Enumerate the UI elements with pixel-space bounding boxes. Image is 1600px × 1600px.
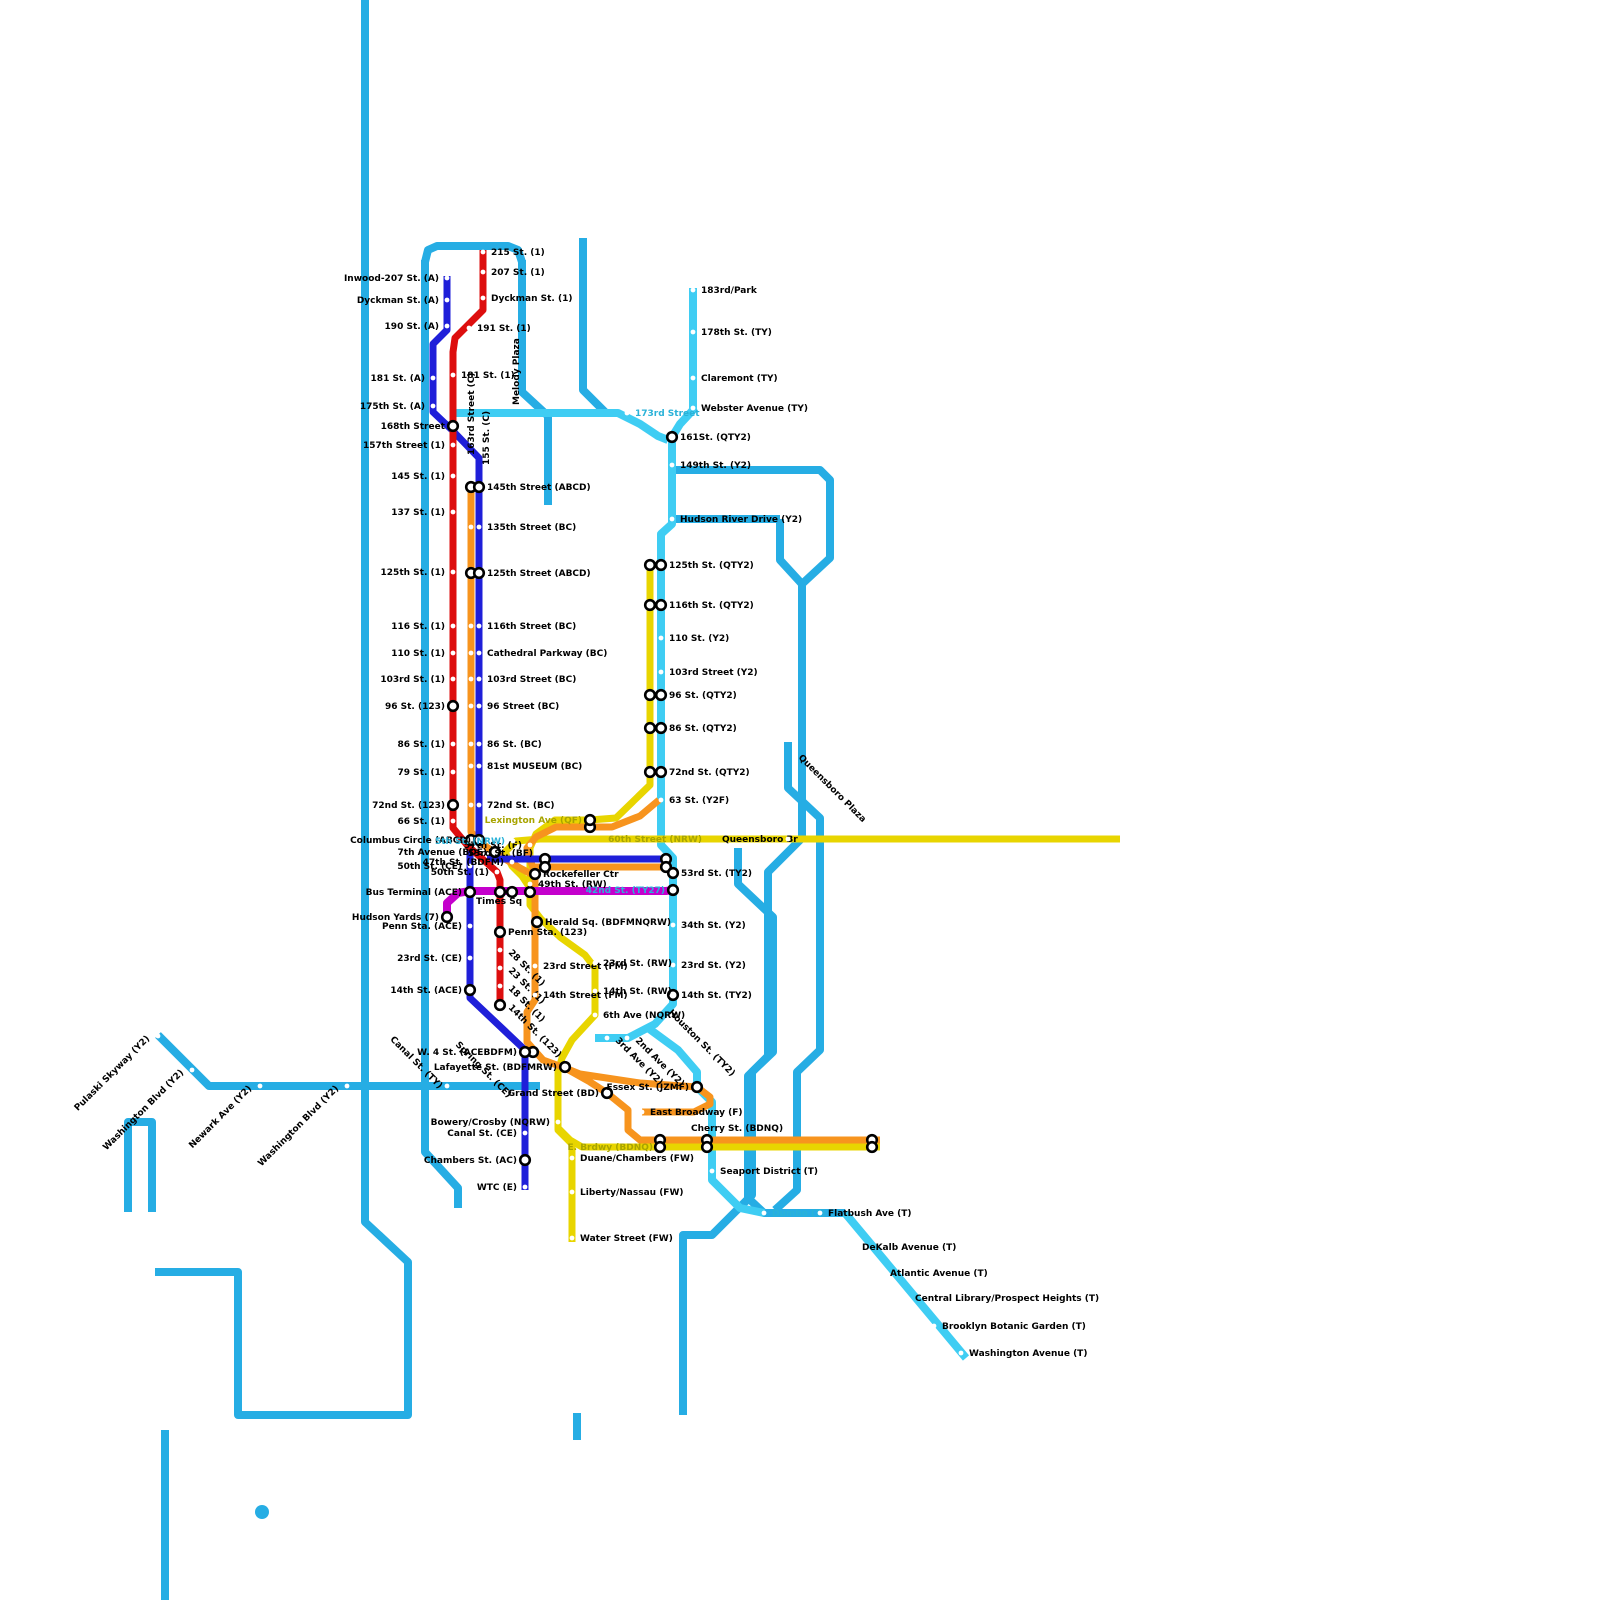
station-label: WTC (E) [477,1183,517,1193]
station-marker [451,770,456,775]
station-label: 183rd/Park [701,286,758,296]
station-marker [528,882,533,887]
transfer-circle [645,600,655,610]
station-marker [467,326,472,331]
station-marker [905,1296,910,1301]
station-label: 23rd St. (RW) [603,959,672,969]
station-marker [477,624,482,629]
station-label: Dumbo (T) [772,1209,825,1219]
station-marker [495,870,500,875]
station-marker [691,288,696,293]
station-label: Grand Street (BD) [508,1089,599,1099]
station-label: 207 St. (1) [491,268,545,278]
station-marker [852,1245,857,1250]
station-marker [477,651,482,656]
station-marker [445,276,450,281]
station-marker [498,948,503,953]
transfer-circle [645,723,655,733]
station-label: 110 St. (1) [391,649,445,659]
station-label: Brooklyn Botanic Garden (T) [942,1322,1086,1332]
station-marker [511,839,516,844]
route-line-east-river-2 [780,519,802,584]
route-line-shore-west [155,0,408,1415]
station-label: 96 St. (123) [385,702,445,712]
station-label: Canal St. (CE) [447,1129,517,1139]
station-label: Duane/Chambers (FW) [580,1154,694,1164]
station-marker [451,570,456,575]
station-marker [495,927,505,937]
station-dot [469,803,474,808]
station-dot [469,624,474,629]
station-marker [431,376,436,381]
transfer-circle [702,1142,712,1152]
station-label: Times Sq [476,897,522,907]
station-marker [445,1084,450,1089]
station-label: 110 St. (Y2) [669,634,729,644]
station-label: 168th Street [381,422,446,432]
station-marker [670,517,675,522]
station-label: Hudson River Drive (Y2) [680,515,802,525]
station-label: Flatbush Ave (T) [828,1209,911,1219]
station-marker [593,1013,598,1018]
station-marker [691,376,696,381]
station-marker [445,298,450,303]
station-marker [520,1155,530,1165]
station-label: 149th St. (Y2) [680,461,751,471]
station-marker [880,1271,885,1276]
station-label: Dyckman St. (A) [357,296,439,306]
station-label: 60th Street (NRW) [608,835,702,845]
station-marker [528,843,533,848]
station-marker [451,443,456,448]
station-label: Bus Terminal (ACE) [366,888,462,898]
subway-map-canvas: Inwood-207 St. (A)Dyckman St. (A)190 St.… [0,0,1600,1600]
station-marker [477,764,482,769]
station-label: Webster Avenue (TY) [701,404,808,414]
station-marker [448,800,458,810]
station-marker [520,1047,530,1057]
station-marker [762,1211,767,1216]
station-marker [670,463,675,468]
station-marker [190,1068,195,1073]
station-label: 190 St. (A) [385,322,439,332]
station-marker [932,1324,937,1329]
station-dot [469,677,474,682]
station-marker [477,704,482,709]
station-label: 125th St. (QTY2) [669,561,754,571]
transfer-circle [525,887,535,897]
transfer-circle [507,887,517,897]
station-marker [786,837,791,842]
station-marker [468,924,473,929]
station-dot [469,742,474,747]
station-label: Queensboro Plaza [796,753,868,825]
station-marker [585,815,595,825]
station-dot [469,651,474,656]
station-marker [533,964,538,969]
station-label: 14th St. (RW) [603,987,672,997]
station-label: 63 St. (Y2F) [669,796,729,806]
station-label: 14th St. (TY2) [681,991,752,1001]
station-label: 6th Ave (NQRW) [603,1011,685,1021]
station-label: 96 Street (BC) [487,702,559,712]
island-blob [255,1505,269,1519]
station-label: 72nd St. (BC) [487,801,555,811]
station-label: 86 St. (QTY2) [669,724,737,734]
transfer-circle [655,1142,665,1152]
station-label: 81st MUSEUM (BC) [487,762,582,772]
station-marker [671,923,676,928]
station-label: Hudson Yards (7) [352,913,439,923]
station-dot [469,704,474,709]
station-label: Herald Sq. (BDFMNQRW) [545,918,671,928]
station-marker [593,989,598,994]
station-marker [465,985,475,995]
station-label: 72nd St. (123) [372,801,445,811]
station-label: 96 St. (QTY2) [669,691,737,701]
station-label: Lafayette St. (BDFMRW) [434,1063,557,1073]
station-marker [477,742,482,747]
station-label: Washington Avenue (T) [969,1349,1087,1359]
station-marker [523,1131,528,1136]
station-marker [495,1000,505,1010]
station-label: Water Street (FW) [580,1234,673,1244]
station-label: Newark Ave (Y2) [187,1084,254,1151]
station-label: 42nd St. (TY27) [586,886,665,896]
station-label: Rockefeller Ctr [543,870,619,880]
station-marker [691,330,696,335]
station-marker [481,270,486,275]
station-label: 116 St. (1) [391,622,445,632]
station-label: Inwood-207 St. (A) [344,274,439,284]
station-label: 215 St. (1) [491,248,545,258]
station-label: 181 St. (1) [461,371,515,381]
route-line-jersey-line [158,1035,540,1086]
station-marker [659,670,664,675]
station-label: 116th St. (QTY2) [669,601,754,611]
route-line-bronx-cross [672,470,830,508]
station-marker [451,742,456,747]
station-label: 155 St. (C) [482,411,492,465]
station-label: Cherry St. (BDNQ) [691,1124,783,1134]
route-line-t-trunk [595,437,673,1038]
station-label: Liberty/Nassau (FW) [580,1188,684,1198]
station-label: Dyckman St. (1) [491,294,572,304]
station-label: E. Brdwy (BDNQ) [568,1143,654,1153]
station-label: 14th St. (ACE) [390,986,462,996]
station-label: Atlantic Avenue (T) [890,1269,988,1279]
station-marker [510,860,515,865]
station-marker [481,296,486,301]
station-label: 157th Street (1) [363,441,445,451]
station-label: 125th St. (1) [381,568,445,578]
station-marker [451,474,456,479]
station-marker [445,324,450,329]
station-label: 163rd Street (C) [467,373,477,456]
station-marker [659,636,664,641]
station-label: 161St. (QTY2) [680,433,751,443]
station-marker [656,767,666,777]
station-marker [345,1084,350,1089]
station-label: 72nd St. (QTY2) [669,768,750,778]
station-label: 173rd Street [635,409,700,419]
station-label: Penn Sta. (ACE) [382,922,462,932]
station-marker [474,482,484,492]
station-marker [448,421,458,431]
station-marker [532,917,542,927]
station-marker [442,912,452,922]
station-marker [656,560,666,570]
station-label: 145 St. (1) [391,472,445,482]
station-label: 191 St. (1) [477,324,531,334]
station-marker [656,600,666,610]
station-marker [451,677,456,682]
station-marker [605,1036,610,1041]
station-label: 103rd St. (1) [380,675,445,685]
station-dot [469,525,474,530]
station-label: DeKalb Avenue (T) [862,1243,956,1253]
station-marker [258,1084,263,1089]
station-marker [625,1036,630,1041]
station-marker [692,1082,702,1092]
station-marker [474,568,484,578]
station-label: 103rd Street (Y2) [669,668,758,678]
station-label: 79 St. (1) [398,768,445,778]
station-label: Bowery/Crosby (NQRW) [431,1118,550,1128]
station-label: Pulaski Skyway (Y2) [73,1034,152,1113]
station-label: 53rd St. (BF) [468,849,533,859]
station-label: 5th St. (NRW) [435,837,505,847]
station-marker [448,701,458,711]
station-label: Essex St. (JZMF) [607,1083,689,1093]
station-label: Washington Blvd (Y2) [101,1068,186,1153]
station-label: 103rd Street (BC) [487,675,576,685]
station-marker [668,868,678,878]
station-label: 34th St. (Y2) [681,921,746,931]
station-marker [477,525,482,530]
station-label: Penn Sta. (123) [508,928,587,938]
station-marker [498,966,503,971]
transfer-circle [495,887,505,897]
station-marker [431,404,436,409]
station-marker [818,1211,823,1216]
station-label: 178th St. (TY) [701,328,772,338]
station-marker [570,1236,575,1241]
station-marker [959,1351,964,1356]
station-marker [533,993,538,998]
station-marker [468,956,473,961]
transfer-circle [645,560,655,570]
station-marker [477,803,482,808]
station-marker [556,1120,561,1125]
station-label: 175th St. (A) [360,402,425,412]
station-marker [593,961,598,966]
station-label: East Broadway (F) [650,1108,743,1118]
transfer-circle [867,1142,877,1152]
station-marker [465,887,475,897]
station-label: 23rd St. (CE) [397,954,462,964]
station-marker [667,432,677,442]
station-marker [656,690,666,700]
station-marker [451,819,456,824]
station-label: 53rd St. (TY2) [681,869,752,879]
route-line-shore-hook [128,1122,152,1212]
station-marker [451,510,456,515]
station-marker [570,1190,575,1195]
station-label: Melody Plaza [512,338,522,405]
station-label: Central Library/Prospect Heights (T) [915,1294,1099,1304]
station-label: 137 St. (1) [391,508,445,518]
station-marker [451,651,456,656]
station-marker [656,723,666,733]
station-label: Chambers St. (AC) [424,1156,517,1166]
station-marker [668,885,678,895]
station-marker [156,1034,161,1039]
route-line-broadway-yellow [530,560,650,1242]
station-label: Lexington Ave (QF) [485,816,582,826]
station-marker [498,984,503,989]
station-label: Seaport District (T) [720,1167,818,1177]
station-marker [523,1185,528,1190]
station-label: Cathedral Parkway (BC) [487,649,607,659]
transfer-circle [645,690,655,700]
station-marker [451,624,456,629]
station-dot [469,764,474,769]
station-marker [659,798,664,803]
station-marker [530,869,540,879]
route-lines [128,0,1120,1600]
station-marker [451,373,456,378]
station-marker [570,1156,575,1161]
station-label: 125th Street (ABCD) [487,569,591,579]
subway-map: Inwood-207 St. (A)Dyckman St. (A)190 St.… [0,0,1600,1600]
transfer-circle [645,767,655,777]
station-label: 181 St. (A) [371,374,425,384]
station-label: 86 St. (1) [398,740,445,750]
station-marker [481,250,486,255]
route-line-brooklyn-t [845,1213,966,1358]
station-label: 23rd St. (Y2) [681,961,746,971]
station-marker [625,411,630,416]
station-label: 135th Street (BC) [487,523,576,533]
station-marker [560,1062,570,1072]
station-marker [477,677,482,682]
station-label: 116th Street (BC) [487,622,576,632]
route-line-harlem-feeder [583,238,607,414]
station-label: 86 St. (BC) [487,740,542,750]
station-label: 145th Street (ABCD) [487,483,591,493]
station-label: 66 St. (1) [398,817,445,827]
station-label: 47th St. (BDFM) [423,858,504,868]
station-marker [640,1110,645,1115]
station-label: Washington Blvd (Y2) [256,1084,341,1169]
station-marker [710,1169,715,1174]
station-marker [691,406,696,411]
station-label: Claremont (TY) [701,374,778,384]
